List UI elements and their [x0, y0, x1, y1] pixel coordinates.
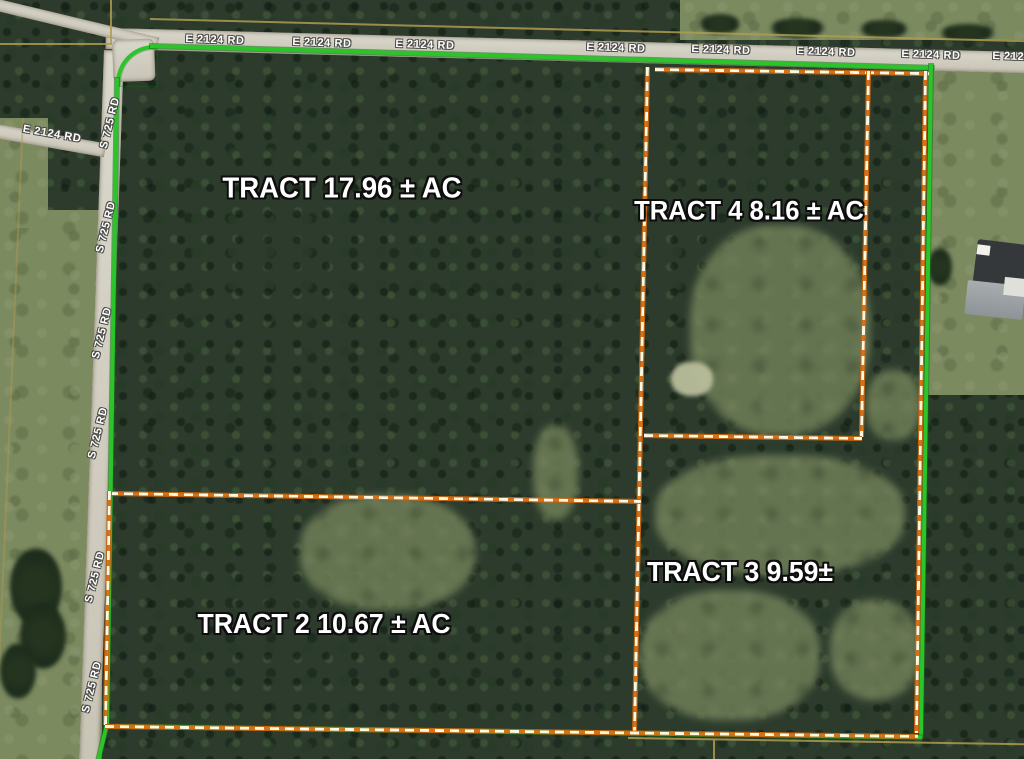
clearing [640, 590, 820, 720]
clearing [690, 225, 870, 435]
road-label-e2124: E 2124 RD [586, 41, 646, 55]
clearing [866, 370, 921, 440]
road-label-e2124: E 2124 RD [992, 50, 1024, 64]
clearing [830, 600, 920, 700]
parcel-line [713, 740, 715, 759]
road-label-e2124: E 2124 RD [395, 38, 455, 52]
house-roof-wing [1003, 277, 1024, 297]
tract-label-1: TRACT 17.96 ± AC [222, 173, 461, 206]
clearing [300, 495, 475, 610]
tract-label-4: TRACT 4 8.16 ± AC [634, 196, 864, 227]
tract-label-2: TRACT 2 10.67 ± AC [197, 608, 450, 640]
road-label-e2124: E 2124 RD [185, 33, 245, 47]
shed-roof [976, 244, 990, 256]
road-label-e2124: E 2124 RD [292, 36, 352, 50]
tree-clump [0, 643, 36, 699]
parcel-line [110, 0, 112, 45]
road-label-e2124: E 2124 RD [691, 43, 751, 57]
aerial-plat-map: E 2124 RD E 2124 RD E 2124 RD E 2124 RD … [0, 0, 1024, 759]
tract-label-3: TRACT 3 9.59± [647, 556, 833, 588]
tree-clump [700, 14, 740, 34]
road-label-e2124: E 2124 RD [901, 48, 961, 62]
pond-clearing [671, 362, 713, 396]
field-right [928, 60, 1024, 395]
road-label-e2124: E 2124 RD [796, 45, 856, 59]
tree-clump [928, 248, 952, 286]
parcel-line [0, 43, 112, 45]
clearing [533, 425, 578, 520]
